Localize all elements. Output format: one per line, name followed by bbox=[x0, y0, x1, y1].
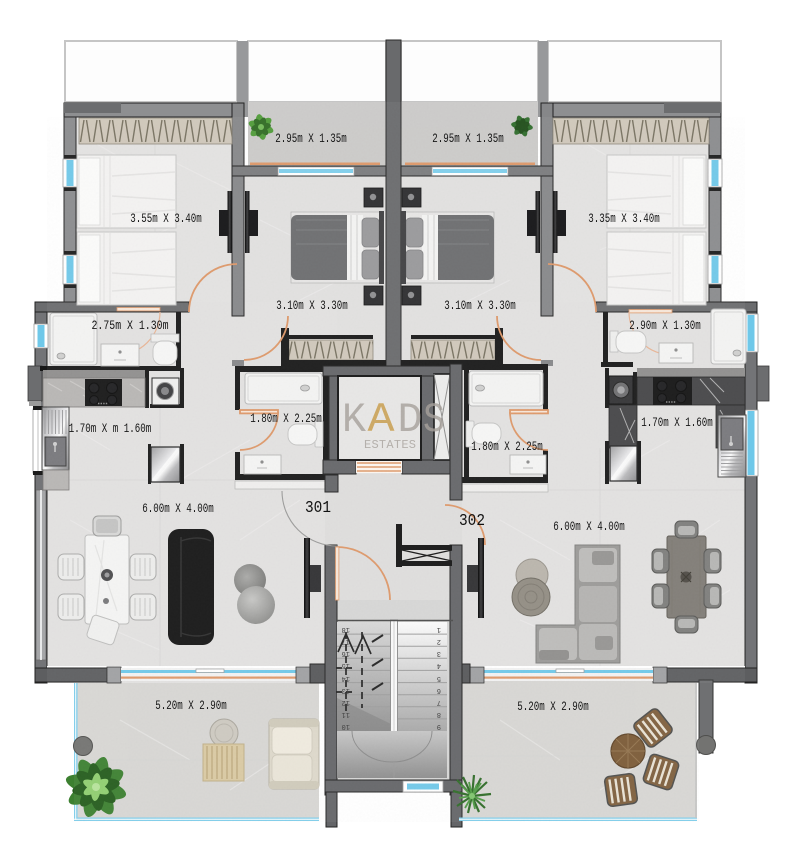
svg-text:2.90m X 1.30m: 2.90m X 1.30m bbox=[629, 318, 701, 333]
svg-text:3.10m X 3.30m: 3.10m X 3.30m bbox=[276, 298, 348, 313]
svg-text:5.20m X 2.90m: 5.20m X 2.90m bbox=[155, 698, 227, 713]
svg-text:2.95m X 1.35m: 2.95m X 1.35m bbox=[275, 131, 347, 146]
svg-text:2.75m X 1.30m: 2.75m X 1.30m bbox=[92, 318, 169, 333]
svg-text:1.70m X 1.60m: 1.70m X 1.60m bbox=[641, 415, 713, 430]
svg-text:3.10m X 3.30m: 3.10m X 3.30m bbox=[444, 298, 516, 313]
svg-text:6.00m X 4.00m: 6.00m X 4.00m bbox=[553, 519, 625, 534]
svg-text:1.80m X 2.25m: 1.80m X 2.25m bbox=[250, 411, 322, 426]
svg-text:5.20m X 2.90m: 5.20m X 2.90m bbox=[517, 699, 589, 714]
svg-text:6.00m X 4.00m: 6.00m X 4.00m bbox=[142, 501, 214, 516]
svg-text:302: 302 bbox=[459, 512, 485, 531]
svg-text:2.95m X 1.35m: 2.95m X 1.35m bbox=[432, 131, 504, 146]
svg-text:1.80m X 2.25m: 1.80m X 2.25m bbox=[471, 439, 543, 454]
svg-text:3.55m X 3.40m: 3.55m X 3.40m bbox=[130, 211, 202, 226]
svg-text:301: 301 bbox=[305, 499, 331, 518]
svg-text:1.70m X m 1.60m: 1.70m X m 1.60m bbox=[69, 421, 152, 436]
svg-text:3.35m X 3.40m: 3.35m X 3.40m bbox=[588, 211, 660, 226]
